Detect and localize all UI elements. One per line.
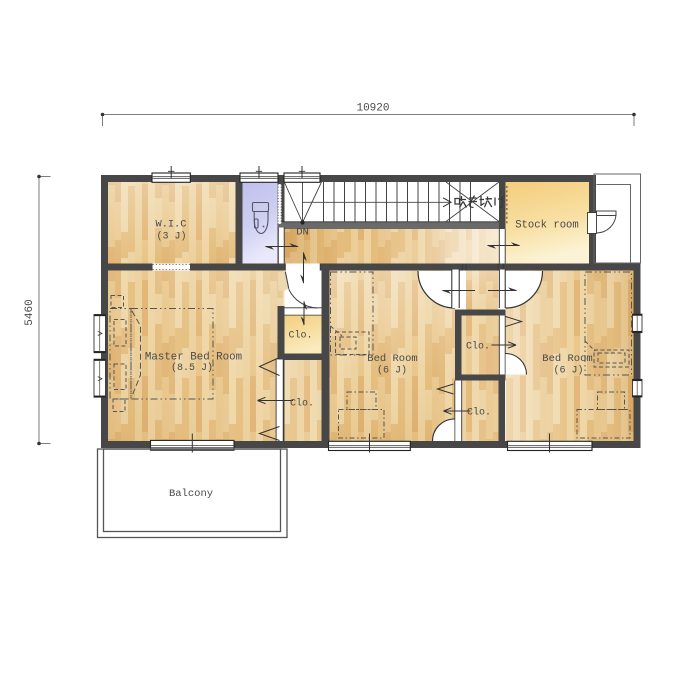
svg-text:Clo.: Clo. (288, 330, 312, 342)
svg-text:W.I.C: W.I.C (156, 219, 187, 231)
svg-text:Clo.: Clo. (290, 398, 314, 410)
svg-text:DN: DN (296, 227, 309, 239)
svg-text:Bed Room: Bed Room (542, 353, 592, 365)
svg-text:Stock room: Stock room (515, 220, 579, 232)
svg-text:Clo.: Clo. (467, 407, 491, 419)
svg-text:(3 J): (3 J) (156, 231, 186, 243)
svg-text:Balcony: Balcony (169, 488, 213, 500)
svg-text:Bed Room: Bed Room (367, 353, 417, 365)
svg-text:Master Bed Room: Master Bed Room (145, 352, 242, 364)
svg-text:5460: 5460 (24, 299, 36, 325)
svg-text:10920: 10920 (356, 103, 389, 115)
svg-text:(6 J): (6 J) (553, 365, 583, 377)
svg-text:Clo.: Clo. (466, 341, 490, 353)
svg-text:(8.5 J): (8.5 J) (171, 362, 213, 374)
svg-text:(6 J): (6 J) (377, 365, 407, 377)
